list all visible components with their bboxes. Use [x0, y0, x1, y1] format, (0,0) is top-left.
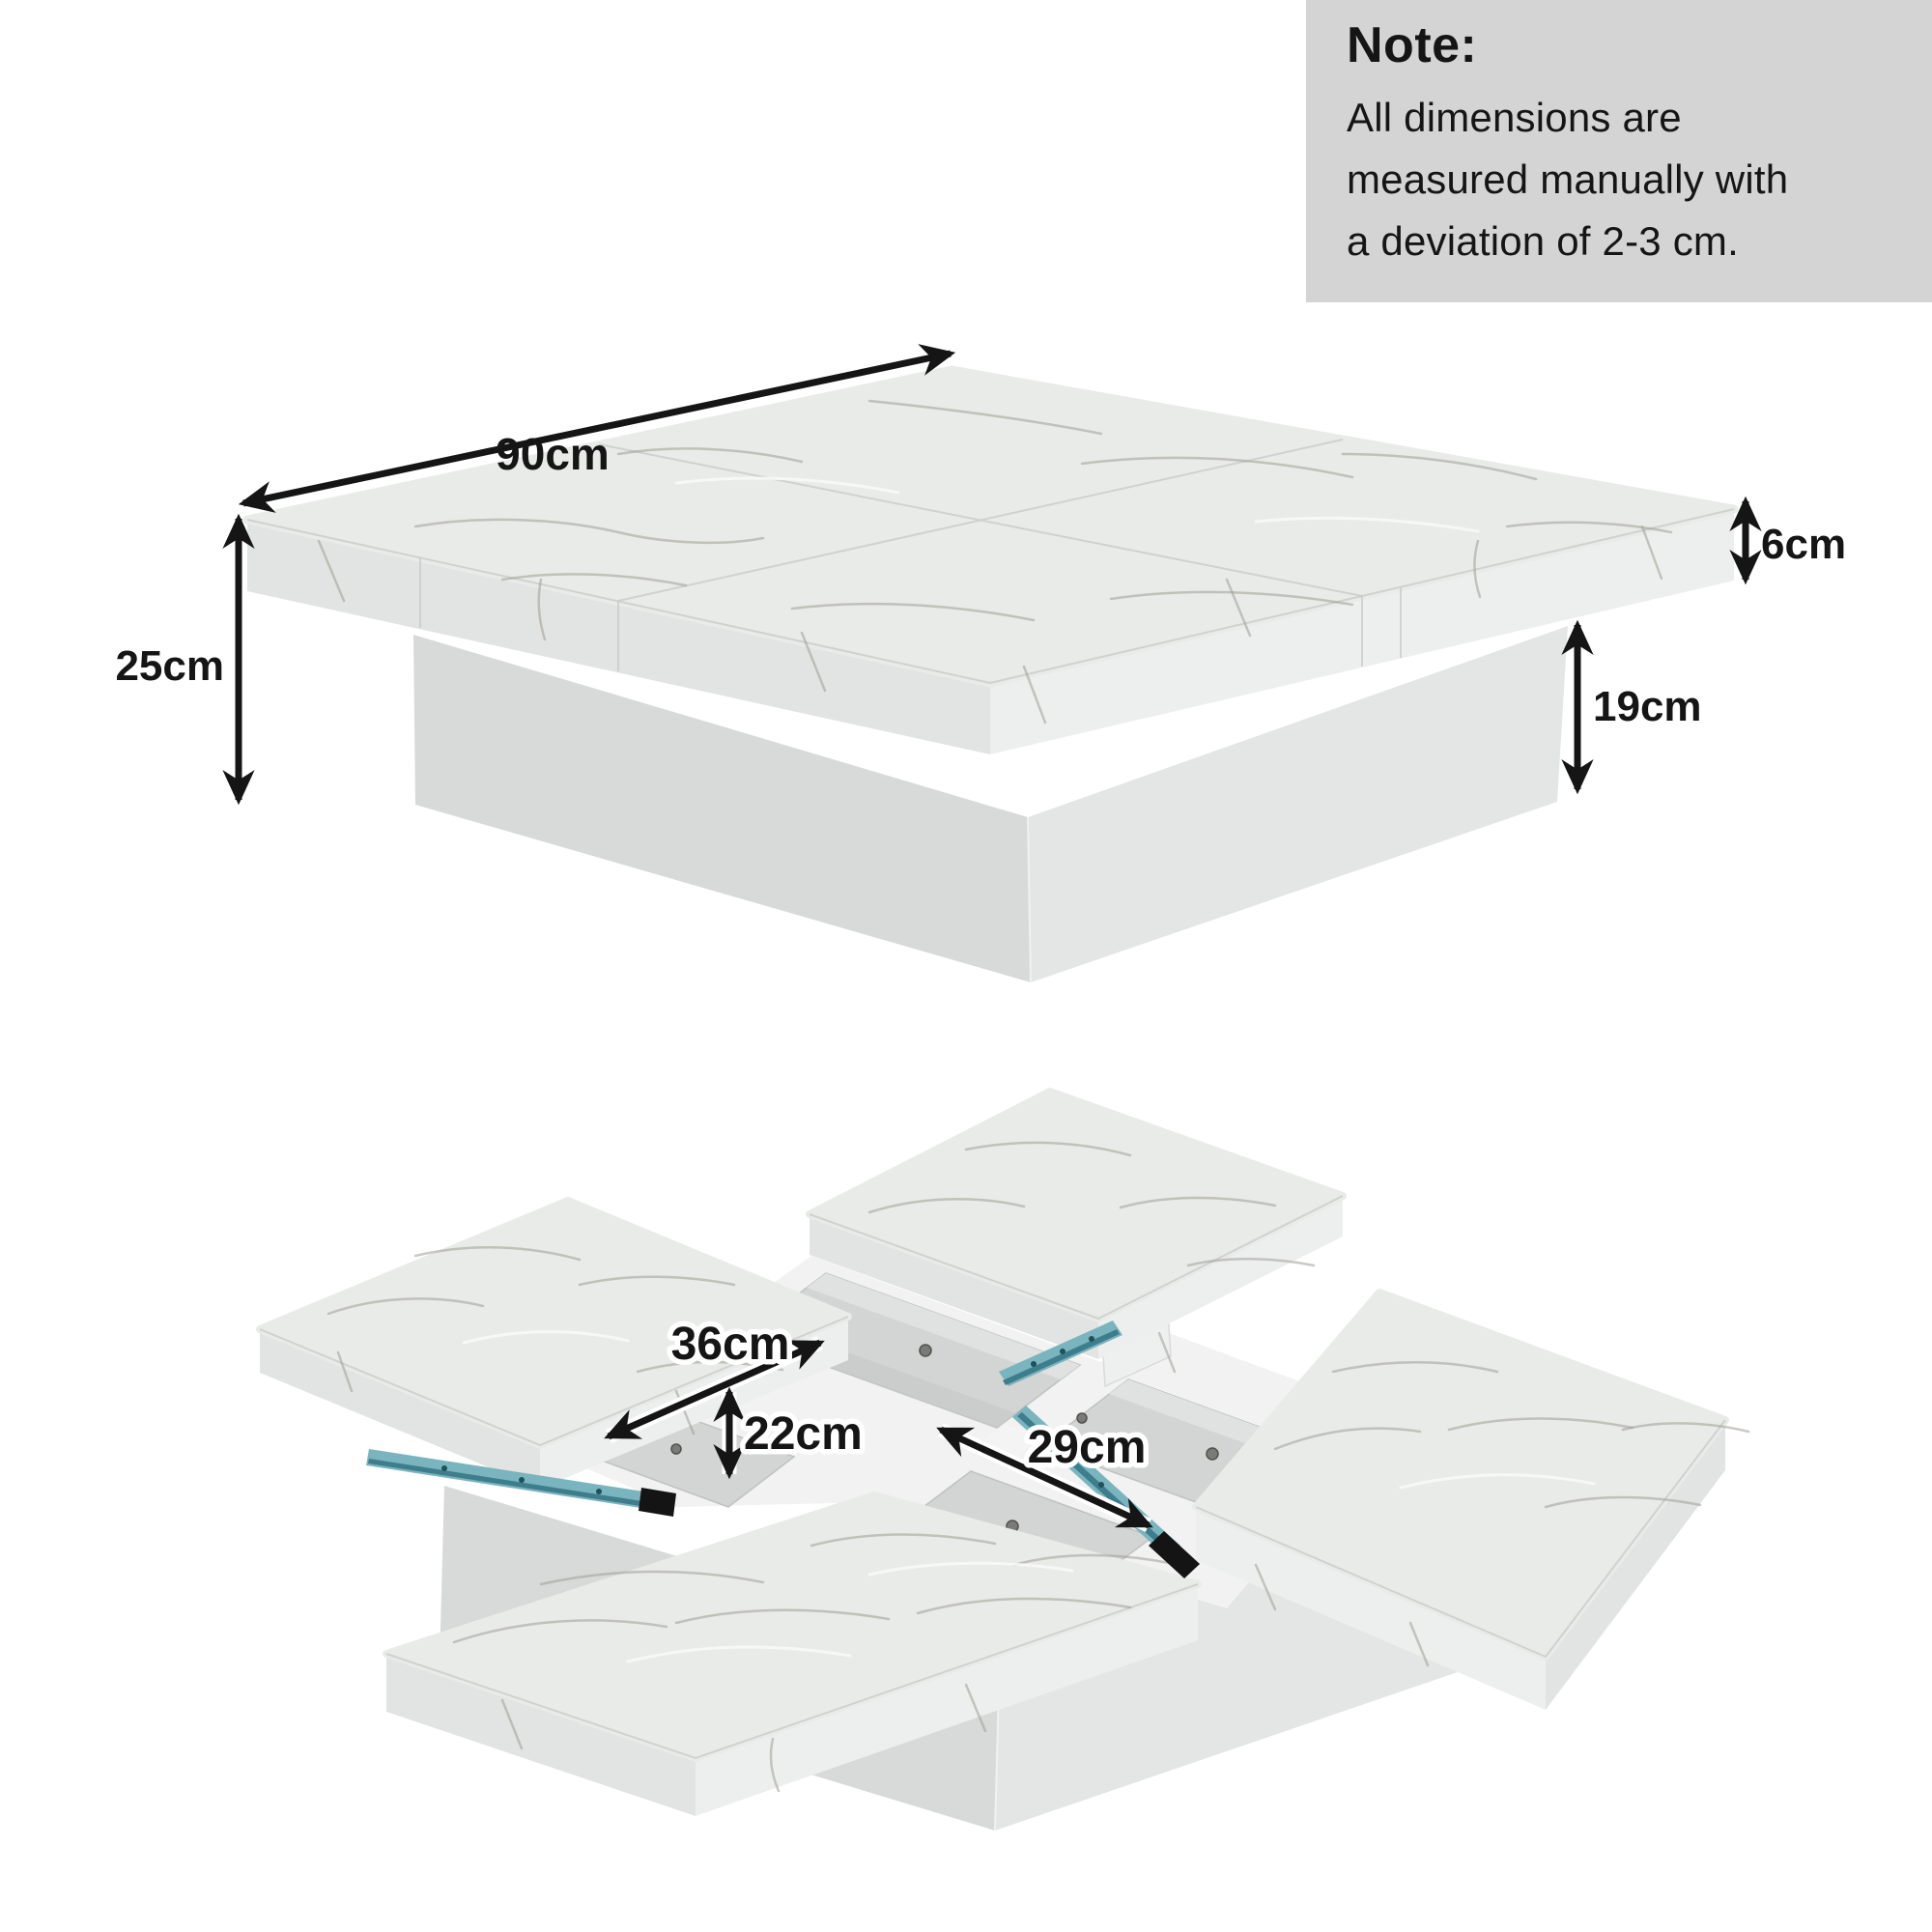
note-line: a deviation of 2-3 cm.	[1347, 211, 1903, 272]
closed-table-figure: 90cm 25cm 6cm 19cm	[115, 354, 1846, 982]
base-height-dimension-label: 19cm	[1593, 683, 1702, 730]
width-dimension-label: 90cm	[496, 429, 610, 479]
note-box: Note: All dimensions are measured manual…	[1306, 0, 1932, 302]
note-line: All dimensions are	[1347, 87, 1903, 149]
compartment-height-dimension-label: 22cm	[744, 1408, 863, 1460]
panel-extension-dimension-label: 36cm	[671, 1319, 790, 1370]
note-title: Note:	[1347, 17, 1903, 73]
top-thickness-dimension-label: 6cm	[1761, 521, 1846, 568]
compartment-width-dimension-label: 29cm	[1028, 1422, 1147, 1473]
note-line: measured manually with	[1347, 149, 1903, 211]
total-height-dimension-label: 25cm	[115, 642, 224, 690]
open-table-figure: 36cm 22cm 29cm	[260, 1092, 1748, 1831]
product-dimension-diagram: 90cm 25cm 6cm 19cm	[0, 0, 1932, 1932]
